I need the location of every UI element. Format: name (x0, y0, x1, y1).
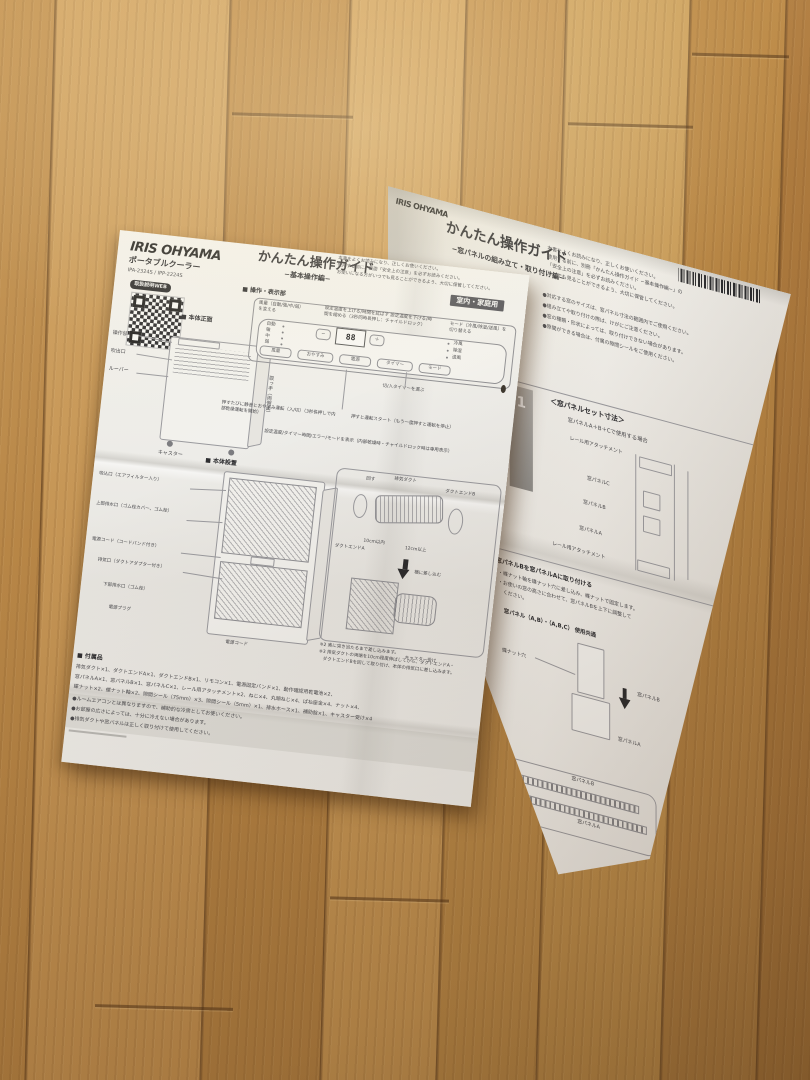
rail-line (635, 454, 636, 570)
back-louver-lower (214, 561, 308, 628)
mode-label: 冷風 (453, 341, 463, 348)
exhaust-duct-drawing (375, 495, 443, 523)
mode-label: 送風 (452, 355, 462, 362)
qr-finder (168, 299, 181, 312)
temperature-display: 88 (335, 327, 367, 347)
window-louver-drawing (346, 577, 399, 634)
temp-down-button: − (315, 328, 331, 341)
duct-through-window (393, 592, 438, 626)
fan-indicator-led (282, 331, 284, 333)
duct-turn-label: 回す (366, 477, 376, 484)
mode-label: 除湿 (452, 348, 462, 355)
temp-up-button: ＋ (369, 334, 385, 347)
manual-sheet-basic-operation: IRIS OHYAMA ポータブルクーラー IPA-2324S / IPP-22… (61, 230, 529, 807)
panel-b-drawing (577, 643, 604, 700)
qr-finder (129, 331, 142, 344)
qr-finder (133, 295, 146, 308)
dimension-line (687, 471, 688, 580)
rail-line (674, 464, 675, 580)
next-step-arrow-head (396, 568, 409, 579)
back-louver-upper (221, 478, 317, 563)
photo-scene: IRIS OHYAMA かんたん操作ガイド −窓パネルの組み立て・取り付け編− … (0, 0, 810, 1080)
